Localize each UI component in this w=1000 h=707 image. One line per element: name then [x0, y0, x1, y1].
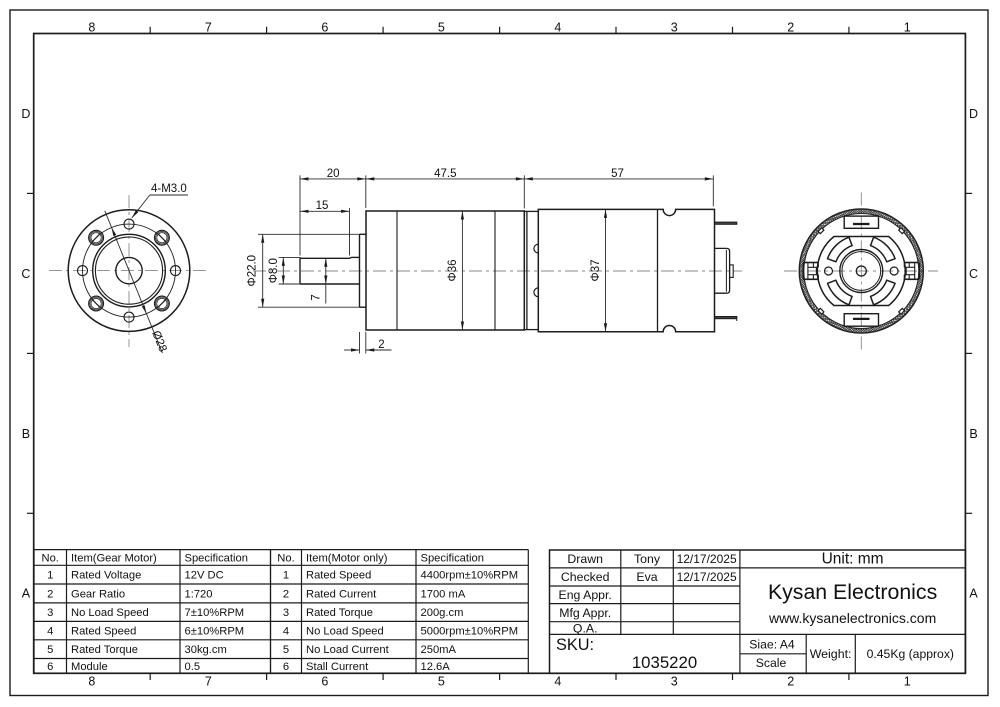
svg-text:B: B: [969, 427, 977, 441]
svg-text:8: 8: [88, 21, 95, 35]
svg-text:7: 7: [205, 674, 212, 688]
svg-text:Item(Gear Motor): Item(Gear Motor): [71, 553, 157, 565]
svg-text:4: 4: [283, 626, 289, 638]
svg-text:Φ8.0: Φ8.0: [268, 258, 280, 283]
svg-text:4: 4: [47, 626, 53, 638]
svg-text:Φ37: Φ37: [590, 260, 602, 282]
svg-text:Rated Speed: Rated Speed: [71, 626, 136, 638]
svg-text:A: A: [969, 587, 978, 601]
svg-text:5: 5: [283, 644, 289, 656]
svg-text:Rated Torque: Rated Torque: [71, 644, 138, 656]
svg-text:Φ36: Φ36: [447, 260, 459, 282]
svg-text:Item(Motor only): Item(Motor only): [306, 553, 388, 565]
svg-text:5: 5: [438, 21, 445, 35]
svg-text:6: 6: [321, 674, 328, 688]
svg-text:3: 3: [47, 607, 53, 619]
svg-text:SKU:: SKU:: [556, 636, 594, 654]
svg-text:Rated Speed: Rated Speed: [306, 570, 371, 582]
svg-text:15: 15: [316, 200, 329, 212]
svg-text:1: 1: [47, 570, 53, 582]
svg-text:200g.cm: 200g.cm: [421, 607, 464, 619]
svg-text:0.5: 0.5: [185, 661, 201, 673]
svg-text:Q.A.: Q.A.: [573, 621, 598, 635]
svg-text:1:720: 1:720: [185, 589, 213, 601]
svg-text:7: 7: [311, 294, 323, 300]
svg-text:A: A: [22, 587, 31, 601]
svg-text:Rated Current: Rated Current: [306, 589, 377, 601]
svg-text:1035220: 1035220: [632, 653, 697, 672]
svg-text:Siae: A4: Siae: A4: [749, 638, 795, 652]
svg-text:Stall Current: Stall Current: [306, 661, 369, 673]
svg-text:B: B: [22, 427, 30, 441]
svg-text:7±10%RPM: 7±10%RPM: [185, 607, 245, 619]
svg-text:Gear Ratio: Gear Ratio: [71, 589, 125, 601]
svg-text:Rated Torque: Rated Torque: [306, 607, 373, 619]
svg-text:No.: No.: [41, 553, 58, 565]
svg-text:Eng Appr.: Eng Appr.: [559, 588, 612, 602]
svg-text:www.kysanelectronics.com: www.kysanelectronics.com: [768, 610, 936, 626]
svg-text:5: 5: [47, 644, 53, 656]
svg-text:7: 7: [205, 21, 212, 35]
svg-text:Specification: Specification: [421, 553, 484, 565]
svg-text:Rated Voltage: Rated Voltage: [71, 570, 141, 582]
svg-text:6±10%RPM: 6±10%RPM: [185, 626, 245, 638]
svg-text:4400rpm±10%RPM: 4400rpm±10%RPM: [421, 570, 519, 582]
svg-text:No Load Speed: No Load Speed: [71, 607, 149, 619]
svg-text:Tony: Tony: [634, 552, 661, 566]
svg-text:Kysan Electronics: Kysan Electronics: [768, 580, 937, 604]
svg-text:57: 57: [611, 168, 624, 180]
svg-text:2: 2: [47, 589, 53, 601]
svg-text:4: 4: [554, 21, 561, 35]
svg-text:12V DC: 12V DC: [185, 570, 224, 582]
svg-text:1: 1: [904, 21, 911, 35]
svg-text:4: 4: [554, 674, 561, 688]
svg-text:Drawn: Drawn: [567, 552, 603, 566]
svg-text:D: D: [969, 107, 978, 121]
svg-text:Checked: Checked: [561, 570, 610, 584]
svg-text:Mfg Appr.: Mfg Appr.: [559, 606, 611, 620]
svg-text:C: C: [969, 267, 978, 281]
svg-text:6: 6: [321, 21, 328, 35]
svg-text:No.: No.: [277, 553, 294, 565]
svg-text:No Load Current: No Load Current: [306, 644, 390, 656]
svg-text:0.45Kg (approx): 0.45Kg (approx): [867, 647, 954, 661]
svg-text:3: 3: [671, 674, 678, 688]
svg-text:C: C: [21, 267, 30, 281]
svg-text:D: D: [21, 107, 30, 121]
svg-text:12.6A: 12.6A: [421, 661, 451, 673]
svg-text:1700 mA: 1700 mA: [421, 589, 466, 601]
svg-text:5000rpm±10%RPM: 5000rpm±10%RPM: [421, 626, 519, 638]
svg-text:No Load Speed: No Load Speed: [306, 626, 384, 638]
svg-text:2: 2: [378, 339, 384, 351]
svg-text:2: 2: [787, 21, 794, 35]
svg-text:Module: Module: [71, 661, 108, 673]
svg-text:20: 20: [327, 168, 340, 180]
svg-text:1: 1: [904, 674, 911, 688]
svg-text:250mA: 250mA: [421, 644, 457, 656]
svg-text:Unit: mm: Unit: mm: [822, 551, 884, 568]
svg-text:12/17/2025: 12/17/2025: [677, 570, 737, 584]
svg-text:Scale: Scale: [756, 656, 787, 670]
svg-text:5: 5: [438, 674, 445, 688]
svg-text:3: 3: [283, 607, 289, 619]
svg-text:2: 2: [283, 589, 289, 601]
svg-text:4-M3.0: 4-M3.0: [151, 183, 187, 195]
svg-text:6: 6: [283, 661, 289, 673]
svg-text:30kg.cm: 30kg.cm: [185, 644, 227, 656]
svg-text:Specification: Specification: [185, 553, 248, 565]
svg-text:3: 3: [671, 21, 678, 35]
svg-text:8: 8: [88, 674, 95, 688]
svg-text:47.5: 47.5: [434, 168, 456, 180]
svg-text:1: 1: [283, 570, 289, 582]
svg-text:6: 6: [47, 661, 53, 673]
svg-text:Eva: Eva: [636, 570, 657, 584]
svg-text:12/17/2025: 12/17/2025: [677, 552, 737, 566]
svg-text:Weight:: Weight:: [810, 647, 852, 661]
svg-text:Φ22.0: Φ22.0: [247, 255, 259, 287]
svg-text:2: 2: [787, 674, 794, 688]
